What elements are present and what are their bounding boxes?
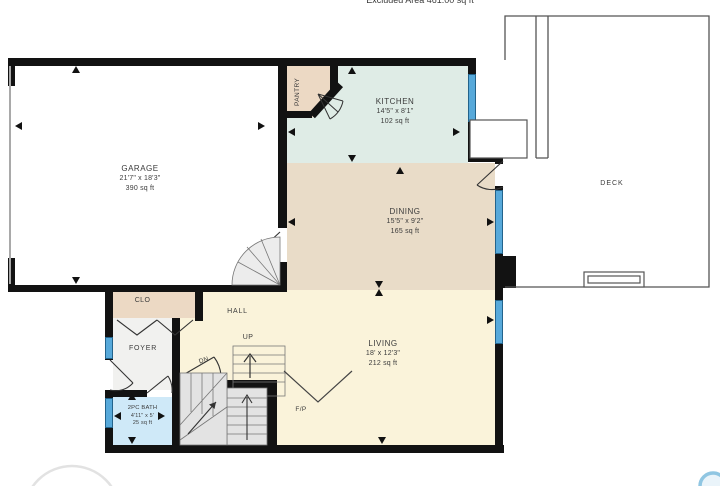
living-label: LIVING 18' x 12'3" 212 sq ft: [333, 338, 433, 369]
measure-arrow: [72, 66, 80, 73]
deck-landing: [470, 120, 527, 158]
garage-corner-steps: [232, 237, 280, 285]
fireplace-lines: [284, 371, 352, 402]
hall-label: HALL: [215, 307, 260, 317]
closet-bifold-doors: [117, 320, 193, 335]
front-door-arc: [110, 360, 133, 391]
bath-door-arc: [147, 376, 172, 393]
stairs-winder: [180, 373, 227, 445]
measure-arrow: [72, 277, 80, 284]
bath-label: 2PC BATH 4'11" x 5' 25 sq ft: [116, 405, 169, 427]
measure-arrow: [288, 128, 295, 136]
measure-arrow: [128, 437, 136, 444]
kitchen-label: KITCHEN 14'5" x 8'1" 102 sq ft: [345, 96, 445, 127]
room-area: 212 sq ft: [333, 359, 433, 369]
room-name: 2PC BATH: [116, 405, 169, 413]
garage-label: GARAGE 21'7" x 18'3" 390 sq ft: [90, 163, 190, 194]
plan-linework: [0, 0, 720, 486]
fireplace-label: F/P: [289, 405, 313, 414]
stairs-up-label: UP: [235, 333, 261, 343]
deck-door-arc: [477, 161, 503, 190]
room-dims: 15'5" x 9'2": [355, 217, 455, 227]
measure-arrow: [348, 155, 356, 162]
measure-arrow: [378, 437, 386, 444]
measure-arrow: [15, 122, 22, 130]
excluded-area-label: Excluded Area 461.00 sq ft: [335, 0, 505, 5]
measure-arrow: [348, 67, 356, 74]
measure-arrow: [375, 281, 383, 288]
room-area: 390 sq ft: [90, 184, 190, 194]
room-dims: 21'7" x 18'3": [90, 174, 190, 184]
iguide-logo: [700, 473, 720, 486]
measure-arrow: [487, 218, 494, 226]
room-dims: 18' x 12'3": [333, 349, 433, 359]
room-dims: 14'5" x 8'1": [345, 107, 445, 117]
measure-arrow: [487, 316, 494, 324]
room-area: 165 sq ft: [355, 227, 455, 237]
dining-label: DINING 15'5" x 9'2" 165 sq ft: [355, 206, 455, 237]
room-name: DINING: [355, 206, 455, 217]
measure-arrow: [396, 167, 404, 174]
pantry-door-fan: [318, 94, 343, 119]
room-area: 102 sq ft: [345, 117, 445, 127]
room-dims: 4'11" x 5': [116, 413, 169, 420]
deck-step: [584, 272, 644, 287]
measure-arrow: [375, 289, 383, 296]
measure-arrow: [258, 122, 265, 130]
deck-label: DECK: [582, 179, 642, 189]
room-name: LIVING: [333, 338, 433, 349]
room-area: 25 sq ft: [116, 420, 169, 427]
foyer-label: FOYER: [114, 344, 172, 354]
room-name: KITCHEN: [345, 96, 445, 107]
floor-plan: Excluded Area 461.00 sq ft GARAGE 21'7" …: [0, 0, 720, 486]
measure-arrow: [453, 128, 460, 136]
compass-icon: [24, 466, 120, 486]
measure-arrow: [288, 218, 295, 226]
pantry-label: PANTRY: [293, 70, 305, 114]
deck-outline: [505, 16, 709, 287]
room-name: GARAGE: [90, 163, 190, 174]
stairs-lower-run: [227, 388, 267, 445]
closet-label: CLO: [120, 296, 165, 306]
measure-arrow: [128, 393, 136, 400]
